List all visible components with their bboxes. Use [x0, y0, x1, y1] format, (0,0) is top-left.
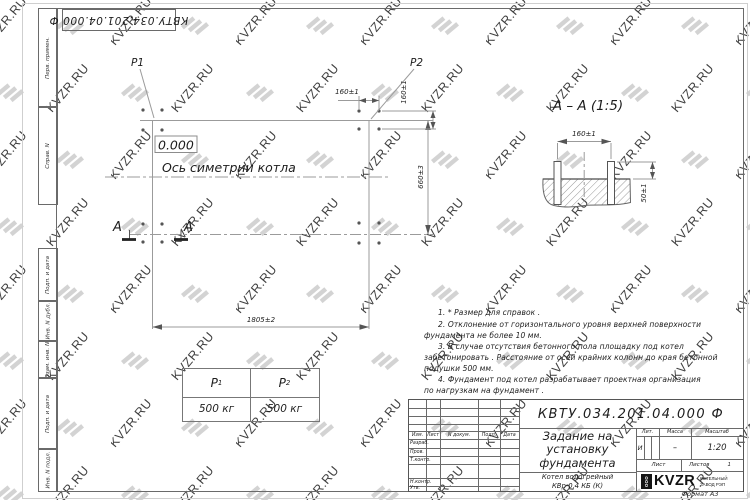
boiler-axis-label: Ось симетрии котла: [162, 160, 296, 175]
section-title: A – A (1:5): [552, 98, 623, 114]
dim-1805-text: 1805±2: [247, 316, 276, 324]
dim-160v-text: 160±1: [400, 80, 408, 104]
row-prov: Пров.: [410, 448, 440, 456]
p1-symbol: P: [211, 376, 218, 390]
drawing-sheet: KVZR.RU KVZR.RU Перв. примен. Справ. N П…: [0, 0, 750, 500]
p2-symbol: P: [279, 376, 286, 390]
note-line: 3. В случае отсутствия бетонного пола пл…: [438, 342, 684, 351]
product-line-1: Котел водогрейный: [542, 473, 613, 482]
load-table-value-p1: 500 кг: [183, 398, 250, 420]
col-izm: Изм.: [409, 431, 426, 439]
dim-660: 660±3: [417, 121, 428, 235]
note-line: подушки 500 мм.: [424, 364, 494, 373]
format-label: Формат А3: [645, 490, 750, 498]
level-mark-value: 0.000: [158, 138, 194, 153]
logo-name: KVZR: [654, 473, 695, 489]
dim-1805: 1805±2: [153, 316, 370, 327]
section-letter-right: A: [183, 220, 193, 235]
col-podp: Подп.: [478, 431, 500, 439]
anchor-bolt-section-right: [608, 162, 615, 205]
dim-section-50-text: 50±1: [640, 183, 648, 202]
note-line: 4. Фундамент под котел разрабатывает про…: [438, 375, 701, 384]
logo-ooo-box: ООО: [641, 474, 652, 489]
label-p2: P2: [410, 57, 423, 69]
load-table-header-p2: P2: [251, 369, 318, 397]
p2-sub: 2: [286, 379, 290, 387]
sheets-value: 1: [728, 462, 732, 468]
anchor-bolt-section-left: [554, 162, 561, 205]
title-line-2: установку: [547, 443, 609, 457]
scale-value: 1:20: [691, 436, 743, 459]
logo-sub-1: КОТЕЛЬНЫЙ: [700, 476, 728, 482]
row-utv: Утв.: [410, 486, 440, 491]
dim-160-horizontal: 160±1: [335, 88, 379, 110]
plan-view: P1 P2 0.000 Ось симетрии котла 1805±2 66…: [105, 57, 436, 329]
label-p1: P1: [131, 57, 144, 69]
row-razrab: Разраб.: [410, 439, 440, 448]
note-line: по нагрузкам на фундамент .: [424, 386, 544, 395]
note-line: 1. * Размер для справок .: [438, 308, 540, 317]
section-view: A – A (1:5) 160±1 50±1: [543, 98, 656, 207]
product-name: Котел водогрейный КВр-0,4 КБ (К): [519, 472, 636, 491]
title-line-1: Задание на: [543, 430, 613, 444]
drawing-title: Задание на установку фундамента: [519, 428, 636, 472]
plan-outline: [105, 120, 433, 329]
sheet-label: Лист: [636, 459, 681, 471]
product-line-2: КВр-0,4 КБ (К): [552, 482, 603, 491]
note-line: забетонировать . Расстояние от осей край…: [424, 353, 718, 362]
logo-sub-2: ЗАВОД РЭП: [700, 482, 725, 488]
row-nkontr: Н.контр.: [410, 478, 440, 486]
dim-section-160-text: 160±1: [572, 130, 596, 138]
sheets-label: Листов: [689, 462, 710, 468]
load-table: P1 P2 500 кг 500 кг: [182, 368, 320, 422]
scale-header: Масштаб: [691, 428, 743, 436]
p1-sub: 1: [218, 379, 222, 387]
sheets-cell: Листов 1: [681, 459, 743, 471]
dim-660-text: 660±3: [417, 165, 425, 189]
mass-header: Масса: [659, 428, 691, 436]
row-tkontr: Т.контр.: [410, 456, 440, 464]
lit-value: И: [636, 436, 644, 459]
col-list: Лист: [426, 431, 440, 439]
doc-number: КВТУ.034.201.04.000 Ф: [519, 400, 743, 428]
col-data: Дата: [500, 431, 519, 439]
title-line-3: фундамента: [539, 457, 615, 471]
load-table-header-p1: P1: [183, 369, 250, 397]
load-table-value-p2: 500 кг: [251, 398, 318, 420]
col-ndokum: N докум.: [440, 431, 478, 439]
logo-ooo-text: ООО: [644, 476, 649, 487]
lit-header: Лит.: [636, 428, 659, 436]
section-letter-left: A: [112, 220, 122, 235]
note-line: 2. Отклонение от горизонтального уровня …: [438, 320, 701, 329]
dim-160h-text: 160±1: [335, 88, 359, 96]
note-line: фундамента не более 10 мм.: [424, 331, 542, 340]
title-block: КВТУ.034.201.04.000 Ф Изм. Лист N докум.…: [408, 399, 744, 492]
mass-value: –: [659, 436, 691, 459]
